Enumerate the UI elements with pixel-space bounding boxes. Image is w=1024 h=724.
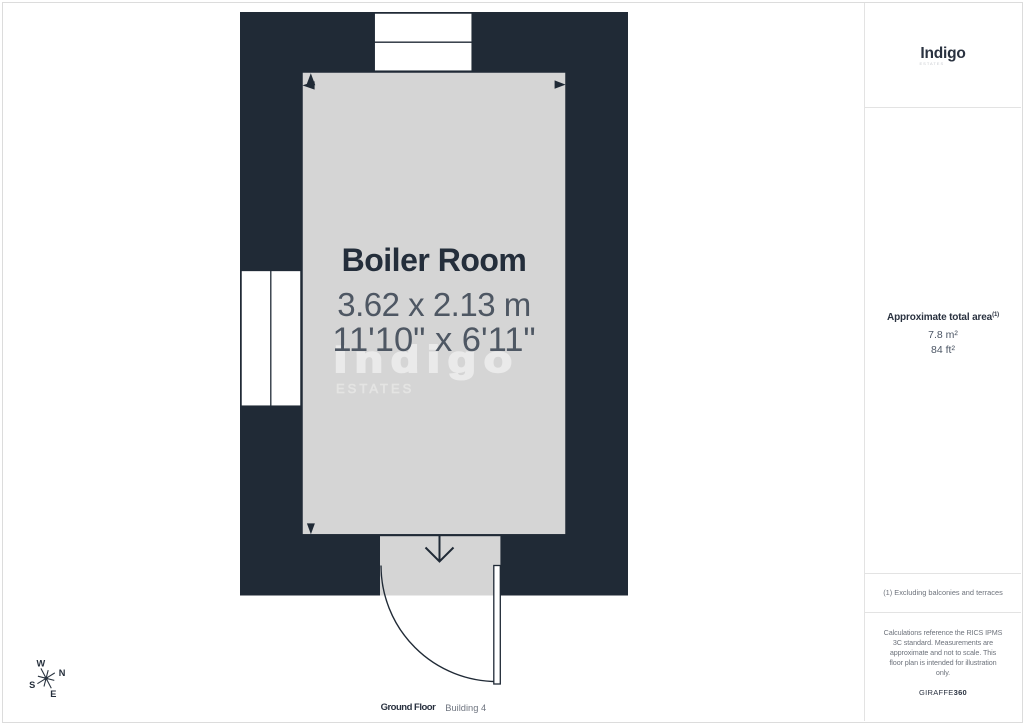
svg-text:S: S — [29, 680, 35, 690]
svg-text:W: W — [36, 659, 45, 669]
svg-text:N: N — [59, 668, 66, 678]
svg-text:E: E — [50, 689, 56, 699]
